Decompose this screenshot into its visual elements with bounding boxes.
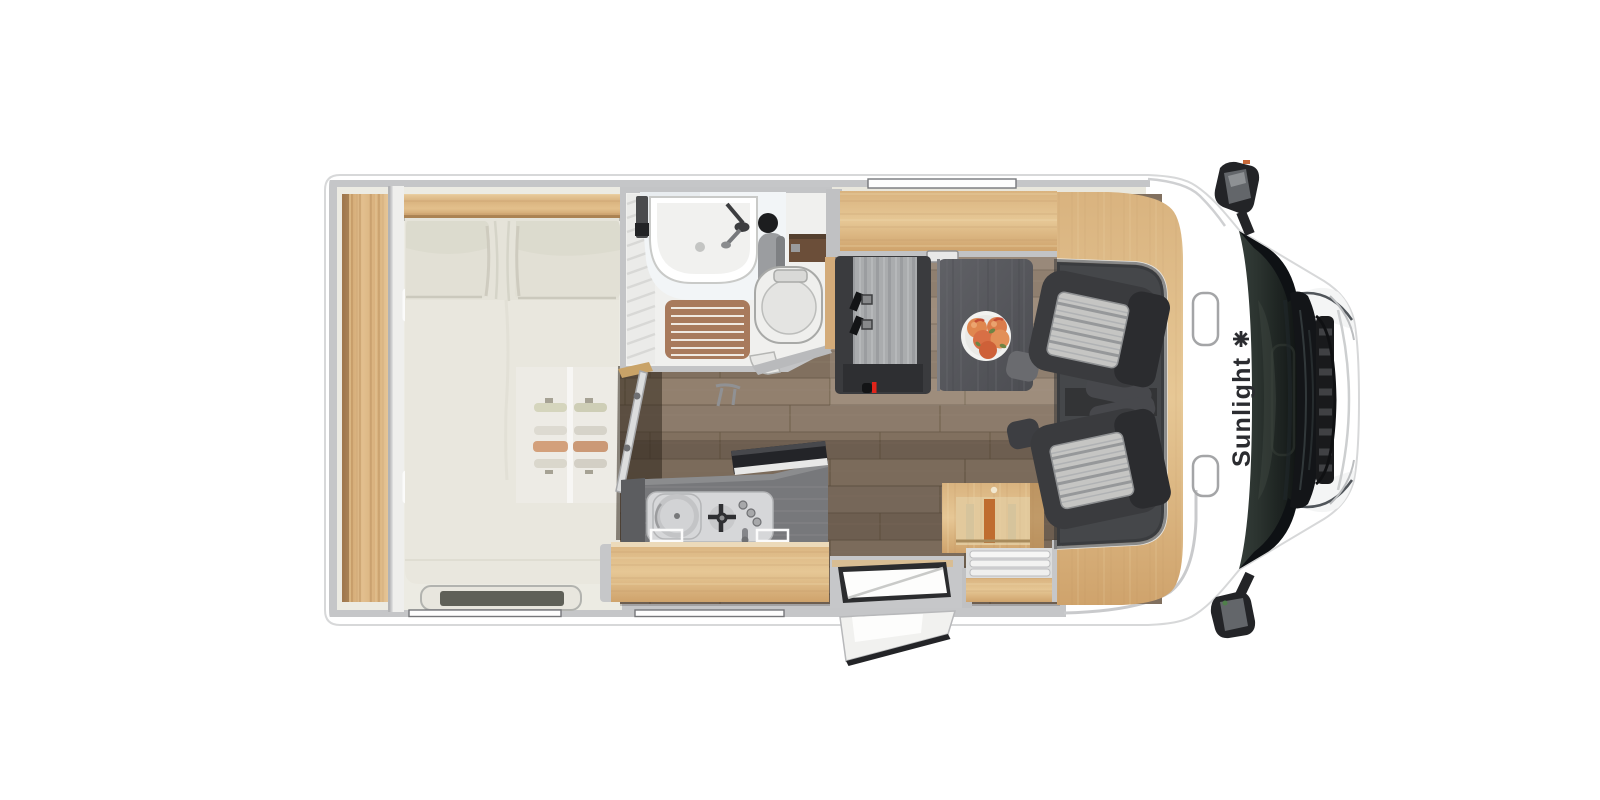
svg-text:Sunlight: Sunlight (1228, 357, 1256, 467)
